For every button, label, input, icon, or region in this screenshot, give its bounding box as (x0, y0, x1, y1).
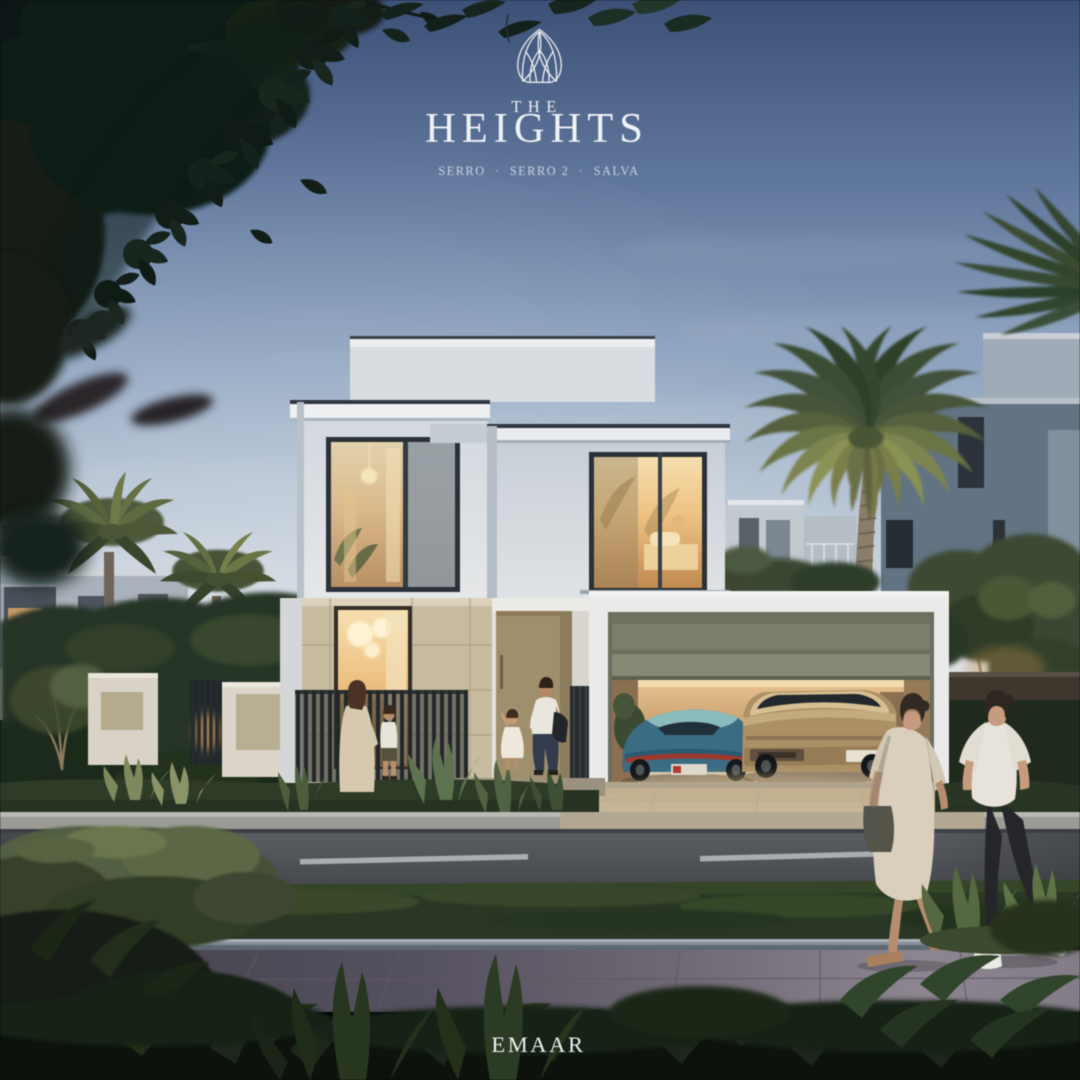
svg-text:SERRO · SERRO 2 · SALVA: SERRO · SERRO 2 · SALVA (438, 164, 639, 178)
svg-text:HEIGHTS: HEIGHTS (425, 105, 649, 152)
svg-text:EMAAR: EMAAR (491, 1032, 585, 1057)
